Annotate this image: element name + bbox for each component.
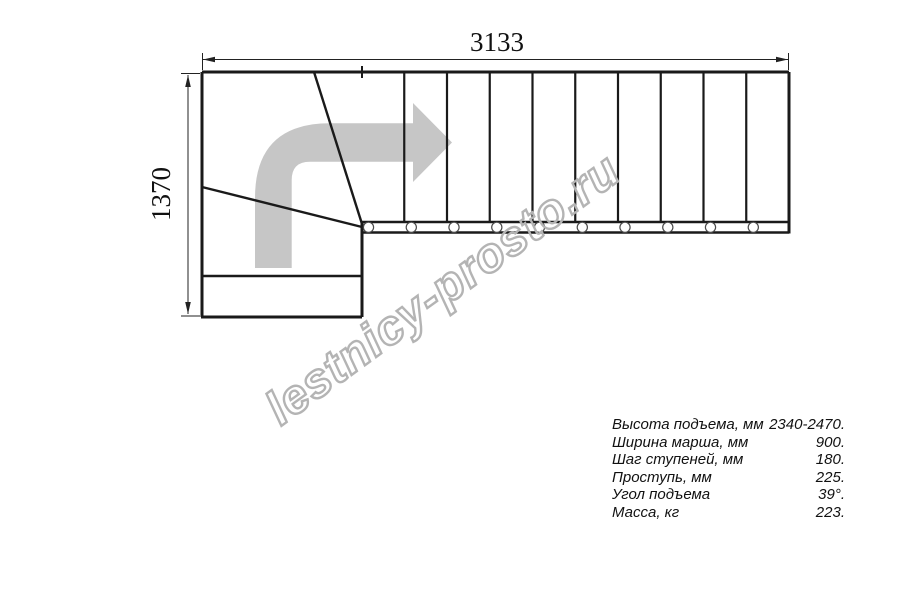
staircase-plan-page: 3133 1370 lestnicy-prosto.ru Высота подъ… [0,0,900,600]
spec-row: Проступь, мм 225. [612,469,845,487]
spec-value: 900. [816,434,845,452]
spec-row: Масса, кг 223. [612,504,845,522]
spec-value: 223. [816,504,845,522]
spec-label: Угол подъема [612,486,710,504]
spec-table: Высота подъема, мм 2340-2470. Ширина мар… [612,416,845,522]
spec-label: Ширина марша, мм [612,434,748,452]
dimension-height-label: 1370 [146,167,176,221]
spec-row: Шаг ступеней, мм 180. [612,451,845,469]
spec-value: 180. [816,451,845,469]
spec-row: Ширина марша, мм 900. [612,434,845,452]
watermark: lestnicy-prosto.ru [256,144,630,436]
spec-label: Высота подъема, мм [612,416,764,434]
spec-value: 39°. [818,486,845,504]
direction-arrow [255,103,452,268]
spec-label: Шаг ступеней, мм [612,451,743,469]
dimension-left [181,74,200,317]
dimension-width-label: 3133 [470,27,524,57]
spec-value: 2340-2470. [769,416,845,434]
spec-row: Угол подъема 39°. [612,486,845,504]
spec-label: Проступь, мм [612,469,712,487]
spec-value: 225. [816,469,845,487]
spec-row: Высота подъема, мм 2340-2470. [612,416,845,434]
spec-label: Масса, кг [612,504,679,522]
